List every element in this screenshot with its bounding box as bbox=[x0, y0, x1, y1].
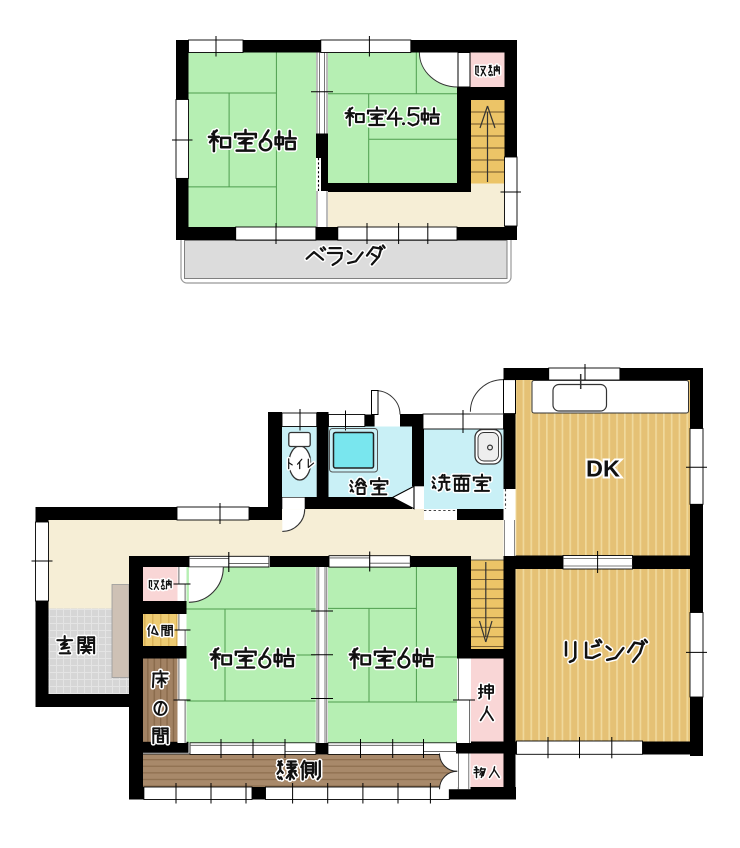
svg-text:DK: DK bbox=[586, 456, 620, 482]
